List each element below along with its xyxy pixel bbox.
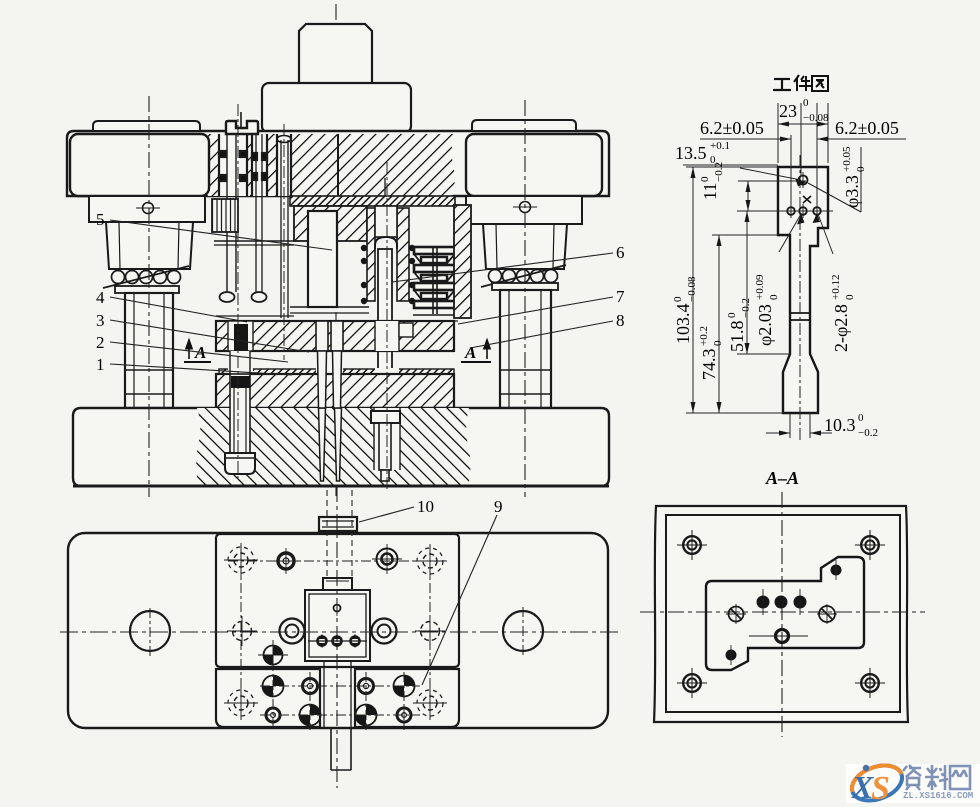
svg-text:−0.2: −0.2 xyxy=(740,298,752,318)
svg-text:0: 0 xyxy=(768,294,780,300)
svg-text:2-φ2.8: 2-φ2.8 xyxy=(831,304,851,352)
svg-text:+0.05: +0.05 xyxy=(841,146,853,172)
svg-text:+0.12: +0.12 xyxy=(830,275,842,300)
svg-text:5: 5 xyxy=(96,210,105,229)
svg-text:6: 6 xyxy=(616,243,625,262)
svg-text:10: 10 xyxy=(417,497,434,516)
svg-text:1: 1 xyxy=(96,355,105,374)
svg-text:−0.08: −0.08 xyxy=(686,276,698,302)
svg-text:9: 9 xyxy=(494,497,503,516)
svg-text:7: 7 xyxy=(616,287,625,306)
svg-text:S: S xyxy=(871,770,890,807)
svg-text:φ2.03: φ2.03 xyxy=(755,304,775,346)
svg-text:4: 4 xyxy=(96,288,105,307)
svg-text:0: 0 xyxy=(699,176,711,182)
svg-text:23: 23 xyxy=(779,101,797,121)
svg-text:+0.09: +0.09 xyxy=(754,274,766,300)
svg-text:10.3: 10.3 xyxy=(824,415,856,435)
svg-text:74.3: 74.3 xyxy=(699,349,719,381)
svg-text:6.2±0.05: 6.2±0.05 xyxy=(835,118,899,138)
svg-text:ZL.XS1616.COM: ZL.XS1616.COM xyxy=(903,791,973,801)
svg-text:A–A: A–A xyxy=(765,468,799,488)
svg-text:−0.2: −0.2 xyxy=(713,162,725,182)
svg-text:0: 0 xyxy=(855,166,867,172)
svg-text:−0.2: −0.2 xyxy=(858,427,878,439)
svg-text:103.4: 103.4 xyxy=(673,304,693,345)
svg-text:13.5: 13.5 xyxy=(675,143,707,163)
svg-text:0: 0 xyxy=(858,412,864,424)
svg-text:0: 0 xyxy=(844,294,856,300)
svg-text:0: 0 xyxy=(726,312,738,318)
svg-text:2: 2 xyxy=(96,333,105,352)
svg-text:3: 3 xyxy=(96,311,105,330)
svg-text:8: 8 xyxy=(616,311,625,330)
svg-text:0: 0 xyxy=(672,296,684,302)
svg-text:51.8: 51.8 xyxy=(727,321,747,353)
svg-text:0: 0 xyxy=(712,340,724,346)
svg-text:11: 11 xyxy=(700,183,720,200)
svg-text:+0.2: +0.2 xyxy=(698,326,710,346)
svg-text:+0.1: +0.1 xyxy=(710,140,730,152)
svg-text:6.2±0.05: 6.2±0.05 xyxy=(700,118,764,138)
svg-text:0: 0 xyxy=(803,97,809,109)
svg-text:−0.08: −0.08 xyxy=(803,112,829,124)
svg-text:φ3.3: φ3.3 xyxy=(842,175,862,208)
svg-text:A: A xyxy=(464,343,476,362)
